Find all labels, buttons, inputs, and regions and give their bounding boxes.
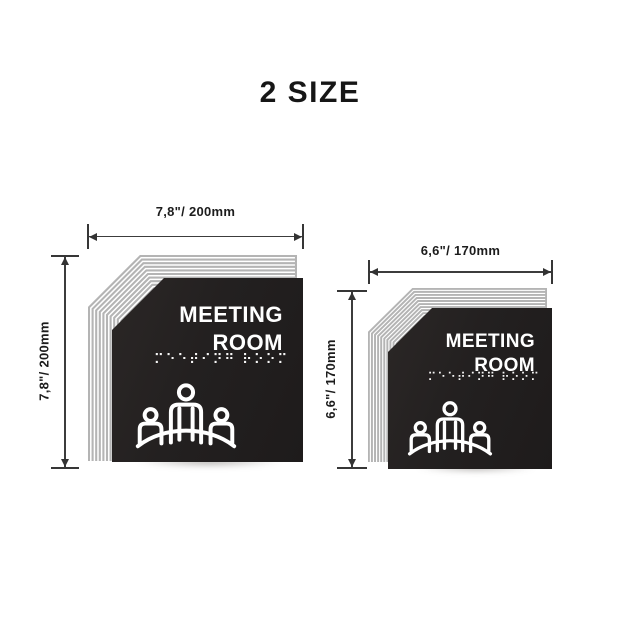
sign-title: MEETING ROOM	[179, 301, 283, 357]
height-dimension-line-large	[51, 255, 79, 469]
braille-dots: ⠍⠑⠑⠞⠊⠝⠛ ⠗⠕⠕⠍	[154, 352, 289, 368]
arrow-right-icon	[543, 268, 551, 276]
width-dimension-line-small	[368, 260, 553, 284]
arrow-right-icon	[294, 233, 302, 241]
sign-title-line1: MEETING	[446, 331, 535, 352]
height-dimension-line-small	[337, 290, 367, 469]
sign-title-line1: MEETING	[179, 302, 283, 327]
meeting-people-table-icon	[406, 400, 494, 457]
width-dimension-label-small: 6,6"/ 170mm	[368, 243, 553, 258]
braille-dots: ⠍⠑⠑⠞⠊⠝⠛ ⠗⠕⠕⠍	[428, 370, 541, 384]
arrow-up-icon	[348, 292, 356, 300]
sign-panel-large: MEETING ROOM ⠍⠑⠑⠞⠊⠝⠛ ⠗⠕⠕⠍	[112, 278, 303, 462]
meeting-people-table-icon	[134, 382, 238, 450]
dim-tick	[551, 260, 553, 284]
sign-panel-small: MEETING ROOM ⠍⠑⠑⠞⠊⠝⠛ ⠗⠕⠕⠍	[388, 308, 552, 469]
dim-tick	[51, 467, 79, 469]
arrow-down-icon	[61, 459, 69, 467]
arrow-up-icon	[61, 257, 69, 265]
arrow-left-icon	[370, 268, 378, 276]
page-title: 2 SIZE	[0, 76, 620, 110]
arrow-left-icon	[89, 233, 97, 241]
width-dimension-line-large	[87, 224, 304, 249]
dim-tick	[302, 224, 304, 249]
dim-line	[89, 236, 302, 238]
arrow-down-icon	[348, 459, 356, 467]
dim-tick	[337, 467, 367, 469]
dim-line	[351, 292, 353, 467]
product-size-diagram: 2 SIZE 7,8"/ 200mm 7,8"/ 200mm	[0, 0, 620, 620]
width-dimension-label-large: 7,8"/ 200mm	[87, 204, 304, 219]
dim-line	[64, 257, 66, 467]
dim-line	[370, 271, 551, 273]
